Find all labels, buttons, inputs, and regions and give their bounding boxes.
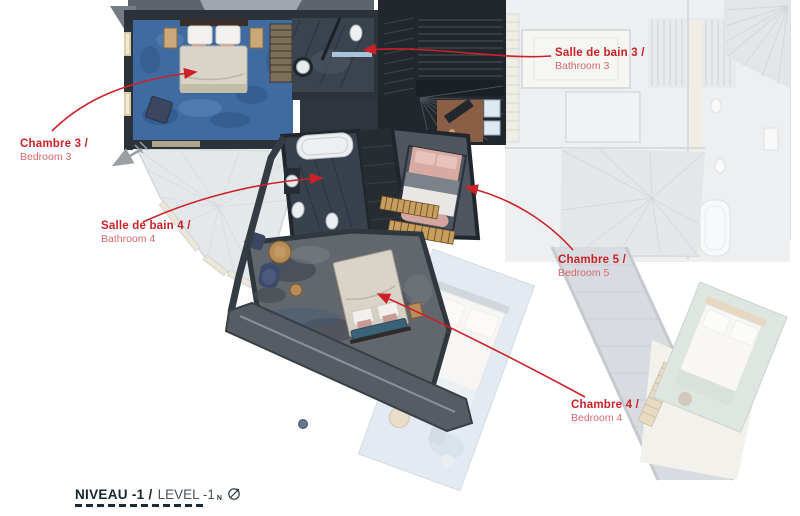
compass-icon (227, 487, 241, 506)
annotation-salle-de-bain-4: Salle de bain 4 / Bathroom 4 (101, 219, 191, 247)
annotation-subtitle: Bathroom 4 (101, 233, 191, 246)
window (484, 121, 500, 135)
toilet-icon (350, 25, 362, 41)
annotation-subtitle: Bathroom 3 (555, 60, 645, 73)
annotation-salle-de-bain-3: Salle de bain 3 / Bathroom 3 (555, 46, 645, 74)
annotation-subtitle: Bedroom 5 (558, 267, 626, 280)
ghost-toilet-icon (711, 99, 721, 113)
annotation-chambre-4: Chambre 4 / Bedroom 4 (571, 398, 639, 426)
title-underline (75, 504, 207, 507)
north-letter: N (217, 495, 222, 502)
level-title-en: LEVEL -1 (158, 487, 215, 502)
level-title-fr: NIVEAU -1 / (75, 487, 153, 502)
annotation-chambre-3: Chambre 3 / Bedroom 3 (20, 137, 88, 165)
sink-icon (297, 61, 310, 74)
bathroom-3-room (292, 10, 382, 135)
nightstand (164, 28, 177, 48)
window (484, 100, 500, 117)
floorplan-canvas: Chambre 3 / Bedroom 3 Salle de bain 3 / … (0, 0, 800, 516)
annotation-title: Chambre 4 / (571, 398, 639, 412)
annotation-subtitle: Bedroom 4 (571, 412, 639, 425)
wardrobe-bedroom-3 (270, 24, 292, 82)
annotation-subtitle: Bedroom 3 (20, 151, 88, 164)
annotation-title: Salle de bain 3 / (555, 46, 645, 60)
ghost-roof-fan (560, 148, 705, 256)
shelf (332, 52, 372, 57)
plan-dot (299, 420, 308, 429)
staircase (378, 0, 506, 145)
pillow (188, 26, 212, 44)
bathtub-icon (296, 132, 354, 160)
middle-wing (282, 128, 478, 244)
ghost-toilet-icon (715, 159, 725, 173)
annotation-title: Chambre 5 / (558, 253, 626, 267)
pillow (216, 26, 240, 44)
nightstand (250, 28, 263, 48)
ghost-ladder (506, 14, 519, 142)
annotation-chambre-5: Chambre 5 / Bedroom 5 (558, 253, 626, 281)
stool (290, 284, 302, 296)
toilet-icon (326, 213, 338, 229)
annotation-title: Salle de bain 4 / (101, 219, 191, 233)
annotation-title: Chambre 3 / (20, 137, 88, 151)
level-title: NIVEAU -1 / LEVEL -1 N (75, 485, 241, 504)
floorplan-drawing (0, 0, 800, 516)
